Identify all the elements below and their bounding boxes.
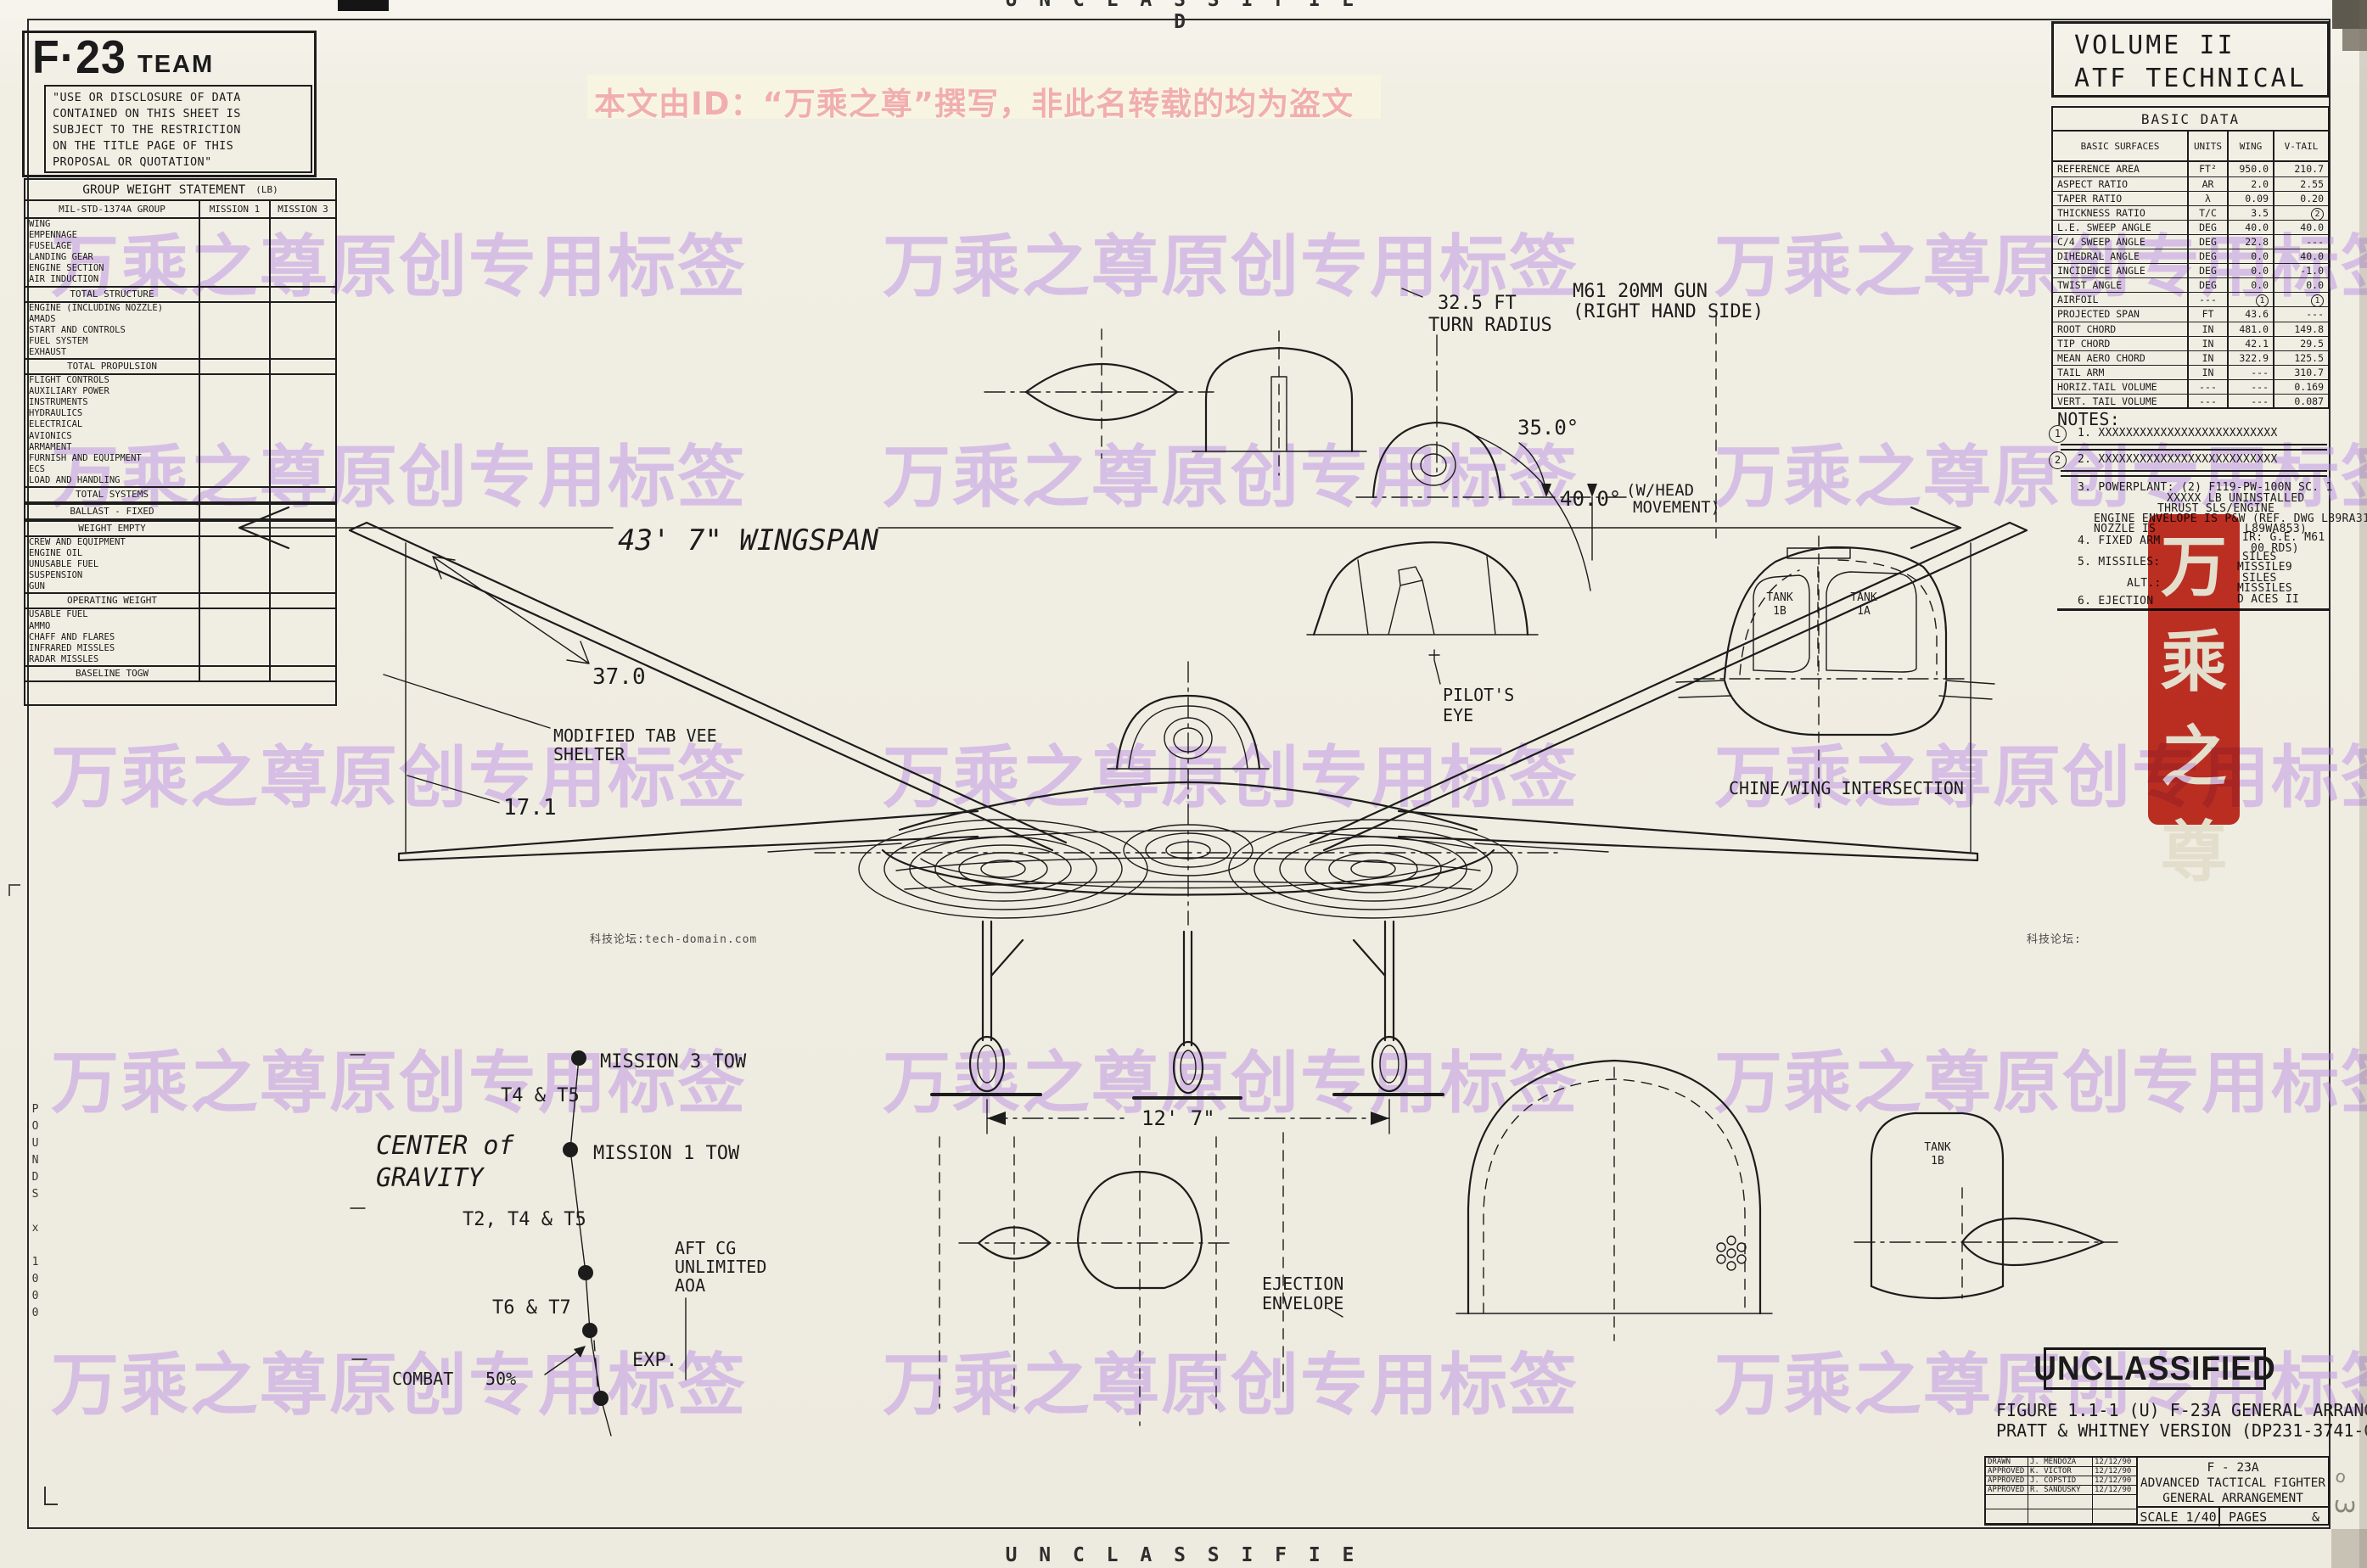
cg-title-1: CENTER of [376, 1131, 514, 1161]
cg-t2t4t5-label: T2, T4 & T5 [463, 1209, 586, 1230]
angle-35-label: 35.0° [1517, 416, 1579, 440]
ejection-label-2: ENVELOPE [1262, 1293, 1343, 1313]
signature-name [2028, 1509, 2093, 1523]
gear-track-dimension: 12' 7" [987, 1100, 1389, 1134]
cg-aftcg-label-3: AOA [675, 1275, 705, 1296]
cg-t6t7-label: T6 & T7 [492, 1297, 571, 1319]
landing-gear [932, 921, 1443, 1098]
figure-caption-2: PRATT & WHITNEY VERSION (DP231-3741-GA) [1996, 1420, 2329, 1441]
signature-role: APPROVED [1986, 1486, 2028, 1494]
red-seal-stamp: 万乘之尊 [2148, 514, 2240, 825]
figure-caption-1: FIGURE 1.1-1 (U) F-23A GENERAL ARRANGEME… [1996, 1400, 2329, 1420]
signature-date: 12/12/90 [2093, 1467, 2136, 1476]
head-move-label-1: (W/HEAD [1626, 481, 1694, 500]
tank-1b-label2: 1B [1773, 605, 1786, 618]
pages-value: & [2312, 1508, 2319, 1526]
chine-cross-section: TANK 1B TANK 1A CHINE/WING INTERSECTION [1676, 536, 1994, 808]
turn-radius-label-2: TURN RADIUS [1428, 315, 1552, 336]
turn-radius-label-1: 32.5 FT [1438, 293, 1517, 314]
signature-role: DRAWN [1986, 1458, 2028, 1466]
ejection-label-1: EJECTION [1262, 1274, 1343, 1294]
signature-name [2028, 1495, 2093, 1509]
dim-17-label: 17.1 [503, 795, 557, 820]
left-border-tick [8, 884, 20, 896]
cg-mission1-label: MISSION 1 TOW [593, 1143, 740, 1164]
tank-1b-lower-label: TANK [1924, 1141, 1950, 1154]
drawing-artwork: 43' 7" WINGSPAN [0, 0, 2367, 1568]
tab-vee-label-1: MODIFIED TAB VEE [553, 725, 717, 746]
seal-char-2: 之 [2161, 704, 2227, 799]
cg-mission3-label: MISSION 3 TOW [600, 1051, 747, 1072]
signature-name: K. VICTOR [2028, 1467, 2093, 1476]
unclassified-stamp-text: UNCLASSIFIED [2033, 1349, 2275, 1387]
wingspan-dimension: 43' 7" WINGSPAN [239, 507, 1971, 852]
title-block: DRAWNJ. MENDOZA12/12/90APPROVEDK. VICTOR… [1984, 1456, 2330, 1526]
tank-1b-lower-label2: 1B [1931, 1155, 1944, 1168]
right-edge-shadow [2359, 0, 2367, 1568]
signature-table: DRAWNJ. MENDOZA12/12/90APPROVEDK. VICTOR… [1986, 1458, 2136, 1524]
tail-dimensions: 37.0 MODIFIED TAB VEE SHELTER 17.1 [384, 557, 717, 820]
tab-vee-label-2: SHELTER [553, 744, 625, 764]
engine-hump-contours-left [859, 820, 1147, 918]
signature-role [1986, 1509, 2028, 1523]
signature-role: APPROVED [1986, 1476, 2028, 1485]
cg-combat-label: COMBAT [392, 1369, 453, 1389]
signature-date: 12/12/90 [2093, 1476, 2136, 1485]
signature-date [2093, 1509, 2136, 1523]
cg-aftcg-label-1: AFT CG [675, 1238, 736, 1258]
tank-1a-label2: 1A [1857, 605, 1871, 618]
signature-name: R. SANDUSKY [2028, 1486, 2093, 1494]
gun-label-1: M61 20MM GUN [1573, 281, 1708, 302]
signature-row: APPROVEDR. SANDUSKY12/12/90 [1986, 1486, 2136, 1495]
forum-text-right: 科技论坛: [2027, 930, 2082, 946]
signature-row-empty [1986, 1495, 2136, 1509]
signature-row-empty [1986, 1509, 2136, 1524]
pencil-mark-2: 3 [2329, 1498, 2359, 1515]
signature-date [2093, 1495, 2136, 1509]
cg-combat-pct-label: 50% [485, 1369, 516, 1389]
signature-role [1986, 1495, 2028, 1509]
signature-row: APPROVEDK. VICTOR12/12/90 [1986, 1467, 2136, 1476]
gear-track-label: 12' 7" [1141, 1106, 1215, 1130]
aircraft-title-3: GENERAL ARRANGEMENT [2138, 1491, 2328, 1506]
head-move-label-2: MOVEMENT) [1633, 498, 1720, 517]
pilots-eye-label-2: EYE [1443, 705, 1473, 725]
scale-cell: SCALE 1/40 [2138, 1508, 2220, 1526]
lower-section-views: EJECTION ENVELOPE TANK 1B [940, 1061, 2117, 1425]
aircraft-title-1: F - 23A [2138, 1460, 2328, 1476]
cg-title-2: GRAVITY [376, 1163, 485, 1193]
signature-row: DRAWNJ. MENDOZA12/12/90 [1986, 1458, 2136, 1467]
cg-exp-label: EXP. [632, 1350, 677, 1371]
forum-text-left: 科技论坛:tech-domain.com [590, 930, 757, 946]
pages-cell: PAGES & [2220, 1508, 2328, 1526]
title-block-bottom: SCALE 1/40 PAGES & [2138, 1506, 2328, 1526]
cg-axis-label: POUNDS x 1000 [29, 1103, 42, 1341]
signature-row: APPROVEDJ. COPSTID12/12/90 [1986, 1476, 2136, 1486]
chine-label: CHINE/WING INTERSECTION [1729, 778, 1964, 798]
signature-name: J. MENDOZA [2028, 1458, 2093, 1466]
angle-40-label: 40.0° [1560, 487, 1621, 511]
signature-date: 12/12/90 [2093, 1486, 2136, 1494]
cg-t4t5-label: T4 & T5 [501, 1085, 580, 1106]
pages-label: PAGES [2229, 1508, 2267, 1526]
corner-mark-bottom-left [44, 1487, 58, 1505]
cg-chart: CENTER of GRAVITY MISSION 3 TOW T4 & T5 … [351, 1050, 766, 1436]
scan-mark-top [338, 0, 389, 11]
signature-role: APPROVED [1986, 1467, 2028, 1476]
wingspan-label: 43' 7" WINGSPAN [618, 524, 879, 557]
dim-37-label: 37.0 [592, 664, 646, 690]
cg-aftcg-label-2: UNLIMITED [675, 1257, 766, 1277]
engine-hump-contours-right [1229, 820, 1517, 918]
unclassified-stamp: UNCLASSIFIED [2044, 1347, 2266, 1390]
tank-1a-label: TANK [1850, 591, 1876, 604]
scanned-drawing-sheet: U N C L A S S I F I E D U N C L A S S I … [0, 0, 2367, 1568]
aircraft-title: F - 23A ADVANCED TACTICAL FIGHTER GENERA… [2138, 1458, 2328, 1506]
aircraft-title-2: ADVANCED TACTICAL FIGHTER [2138, 1476, 2328, 1491]
tank-1b-label: TANK [1766, 591, 1792, 604]
upper-section-views: 35.0° 40.0° (W/HEAD MOVEMENT) PILOT'S EY… [984, 281, 1764, 725]
gun-label-2: (RIGHT HAND SIDE) [1573, 301, 1764, 322]
pilots-eye-label-1: PILOT'S [1443, 685, 1514, 705]
seal-char-0: 万 [2161, 514, 2227, 609]
seal-char-1: 乘 [2161, 609, 2227, 704]
title-block-right: F - 23A ADVANCED TACTICAL FIGHTER GENERA… [2136, 1458, 2328, 1524]
gear-wheel-cluster [1717, 1236, 1746, 1270]
seal-char-3: 尊 [2161, 799, 2227, 894]
signature-date: 12/12/90 [2093, 1458, 2136, 1466]
signature-name: J. COPSTID [2028, 1476, 2093, 1485]
